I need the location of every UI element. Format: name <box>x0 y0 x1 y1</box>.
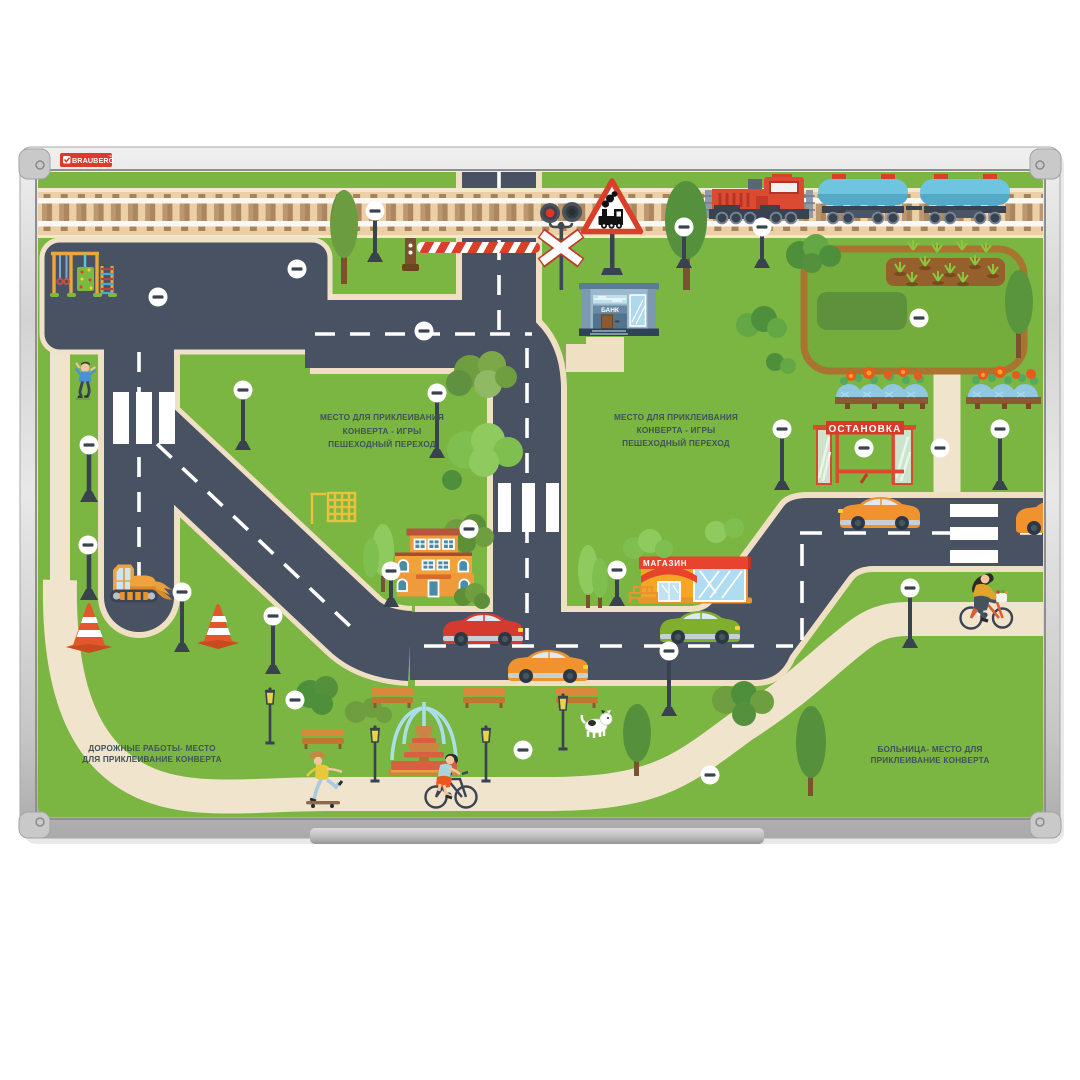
svg-text:КОНВЕРТА - ИГРЫ: КОНВЕРТА - ИГРЫ <box>343 427 422 436</box>
svg-text:МЕСТО ДЛЯ ПРИКЛЕИВАНИЯ: МЕСТО ДЛЯ ПРИКЛЕИВАНИЯ <box>320 413 444 422</box>
svg-text:БАНК: БАНК <box>601 307 619 314</box>
svg-text:БОЛЬНИЦА- МЕСТО ДЛЯ: БОЛЬНИЦА- МЕСТО ДЛЯ <box>877 745 982 754</box>
svg-text:МАГАЗИН: МАГАЗИН <box>643 559 687 568</box>
svg-text:ДЛЯ ПРИКЛЕИВАНИЕ КОНВЕРТА: ДЛЯ ПРИКЛЕИВАНИЕ КОНВЕРТА <box>82 755 221 764</box>
svg-text:ДОРОЖНЫЕ РАБОТЫ- МЕСТО: ДОРОЖНЫЕ РАБОТЫ- МЕСТО <box>88 744 216 753</box>
svg-text:ОСТАНОВКА: ОСТАНОВКА <box>829 424 902 435</box>
svg-text:ПРИКЛЕИВАНИЕ КОНВЕРТА: ПРИКЛЕИВАНИЕ КОНВЕРТА <box>871 756 990 765</box>
svg-text:ПЕШЕХОДНЫЙ ПЕРЕХОД: ПЕШЕХОДНЫЙ ПЕРЕХОД <box>622 437 730 448</box>
svg-text:МЕСТО ДЛЯ ПРИКЛЕИВАНИЯ: МЕСТО ДЛЯ ПРИКЛЕИВАНИЯ <box>614 413 738 422</box>
svg-text:ПЕШЕХОДНЫЙ ПЕРЕХОД: ПЕШЕХОДНЫЙ ПЕРЕХОД <box>328 438 436 449</box>
svg-text:™: ™ <box>108 154 112 159</box>
svg-text:КОНВЕРТА - ИГРЫ: КОНВЕРТА - ИГРЫ <box>637 426 716 435</box>
